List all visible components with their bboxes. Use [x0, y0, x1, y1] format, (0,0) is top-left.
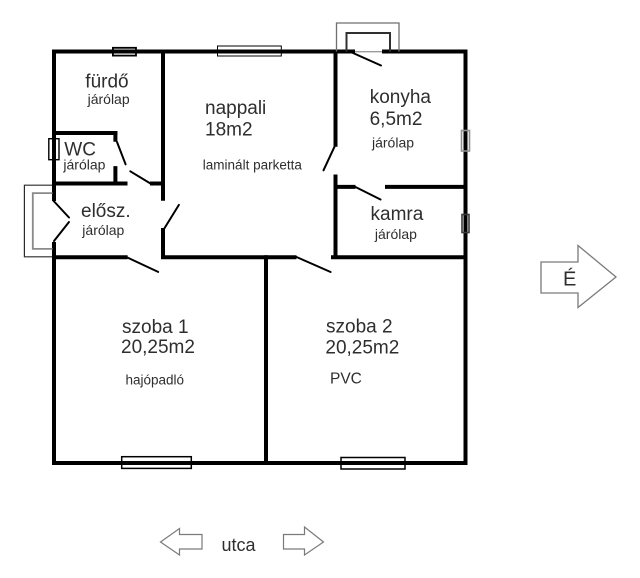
svg-text:PVC: PVC	[330, 371, 362, 388]
svg-text:járólap: járólap	[371, 135, 414, 151]
svg-text:fürdő: fürdő	[85, 71, 128, 92]
svg-text:nappali: nappali	[205, 98, 266, 119]
svg-text:konyha: konyha	[370, 87, 432, 108]
svg-text:18m2: 18m2	[205, 119, 253, 140]
svg-text:járólap: járólap	[374, 226, 417, 242]
svg-text:20,25m2: 20,25m2	[121, 337, 195, 358]
svg-text:utca: utca	[222, 535, 257, 555]
svg-text:É: É	[563, 267, 576, 290]
svg-text:6,5m2: 6,5m2	[370, 109, 423, 130]
svg-text:elősz.: elősz.	[81, 201, 131, 222]
svg-text:szoba 2: szoba 2	[326, 316, 393, 337]
svg-text:hajópadló: hajópadló	[126, 373, 185, 388]
svg-text:laminált parketta: laminált parketta	[203, 157, 303, 172]
svg-text:járólap: járólap	[87, 91, 130, 107]
svg-text:szoba 1: szoba 1	[122, 317, 189, 338]
svg-text:kamra: kamra	[371, 204, 424, 225]
svg-text:járólap: járólap	[81, 222, 124, 238]
svg-text:20,25m2: 20,25m2	[325, 338, 399, 359]
svg-text:járólap: járólap	[62, 157, 105, 173]
